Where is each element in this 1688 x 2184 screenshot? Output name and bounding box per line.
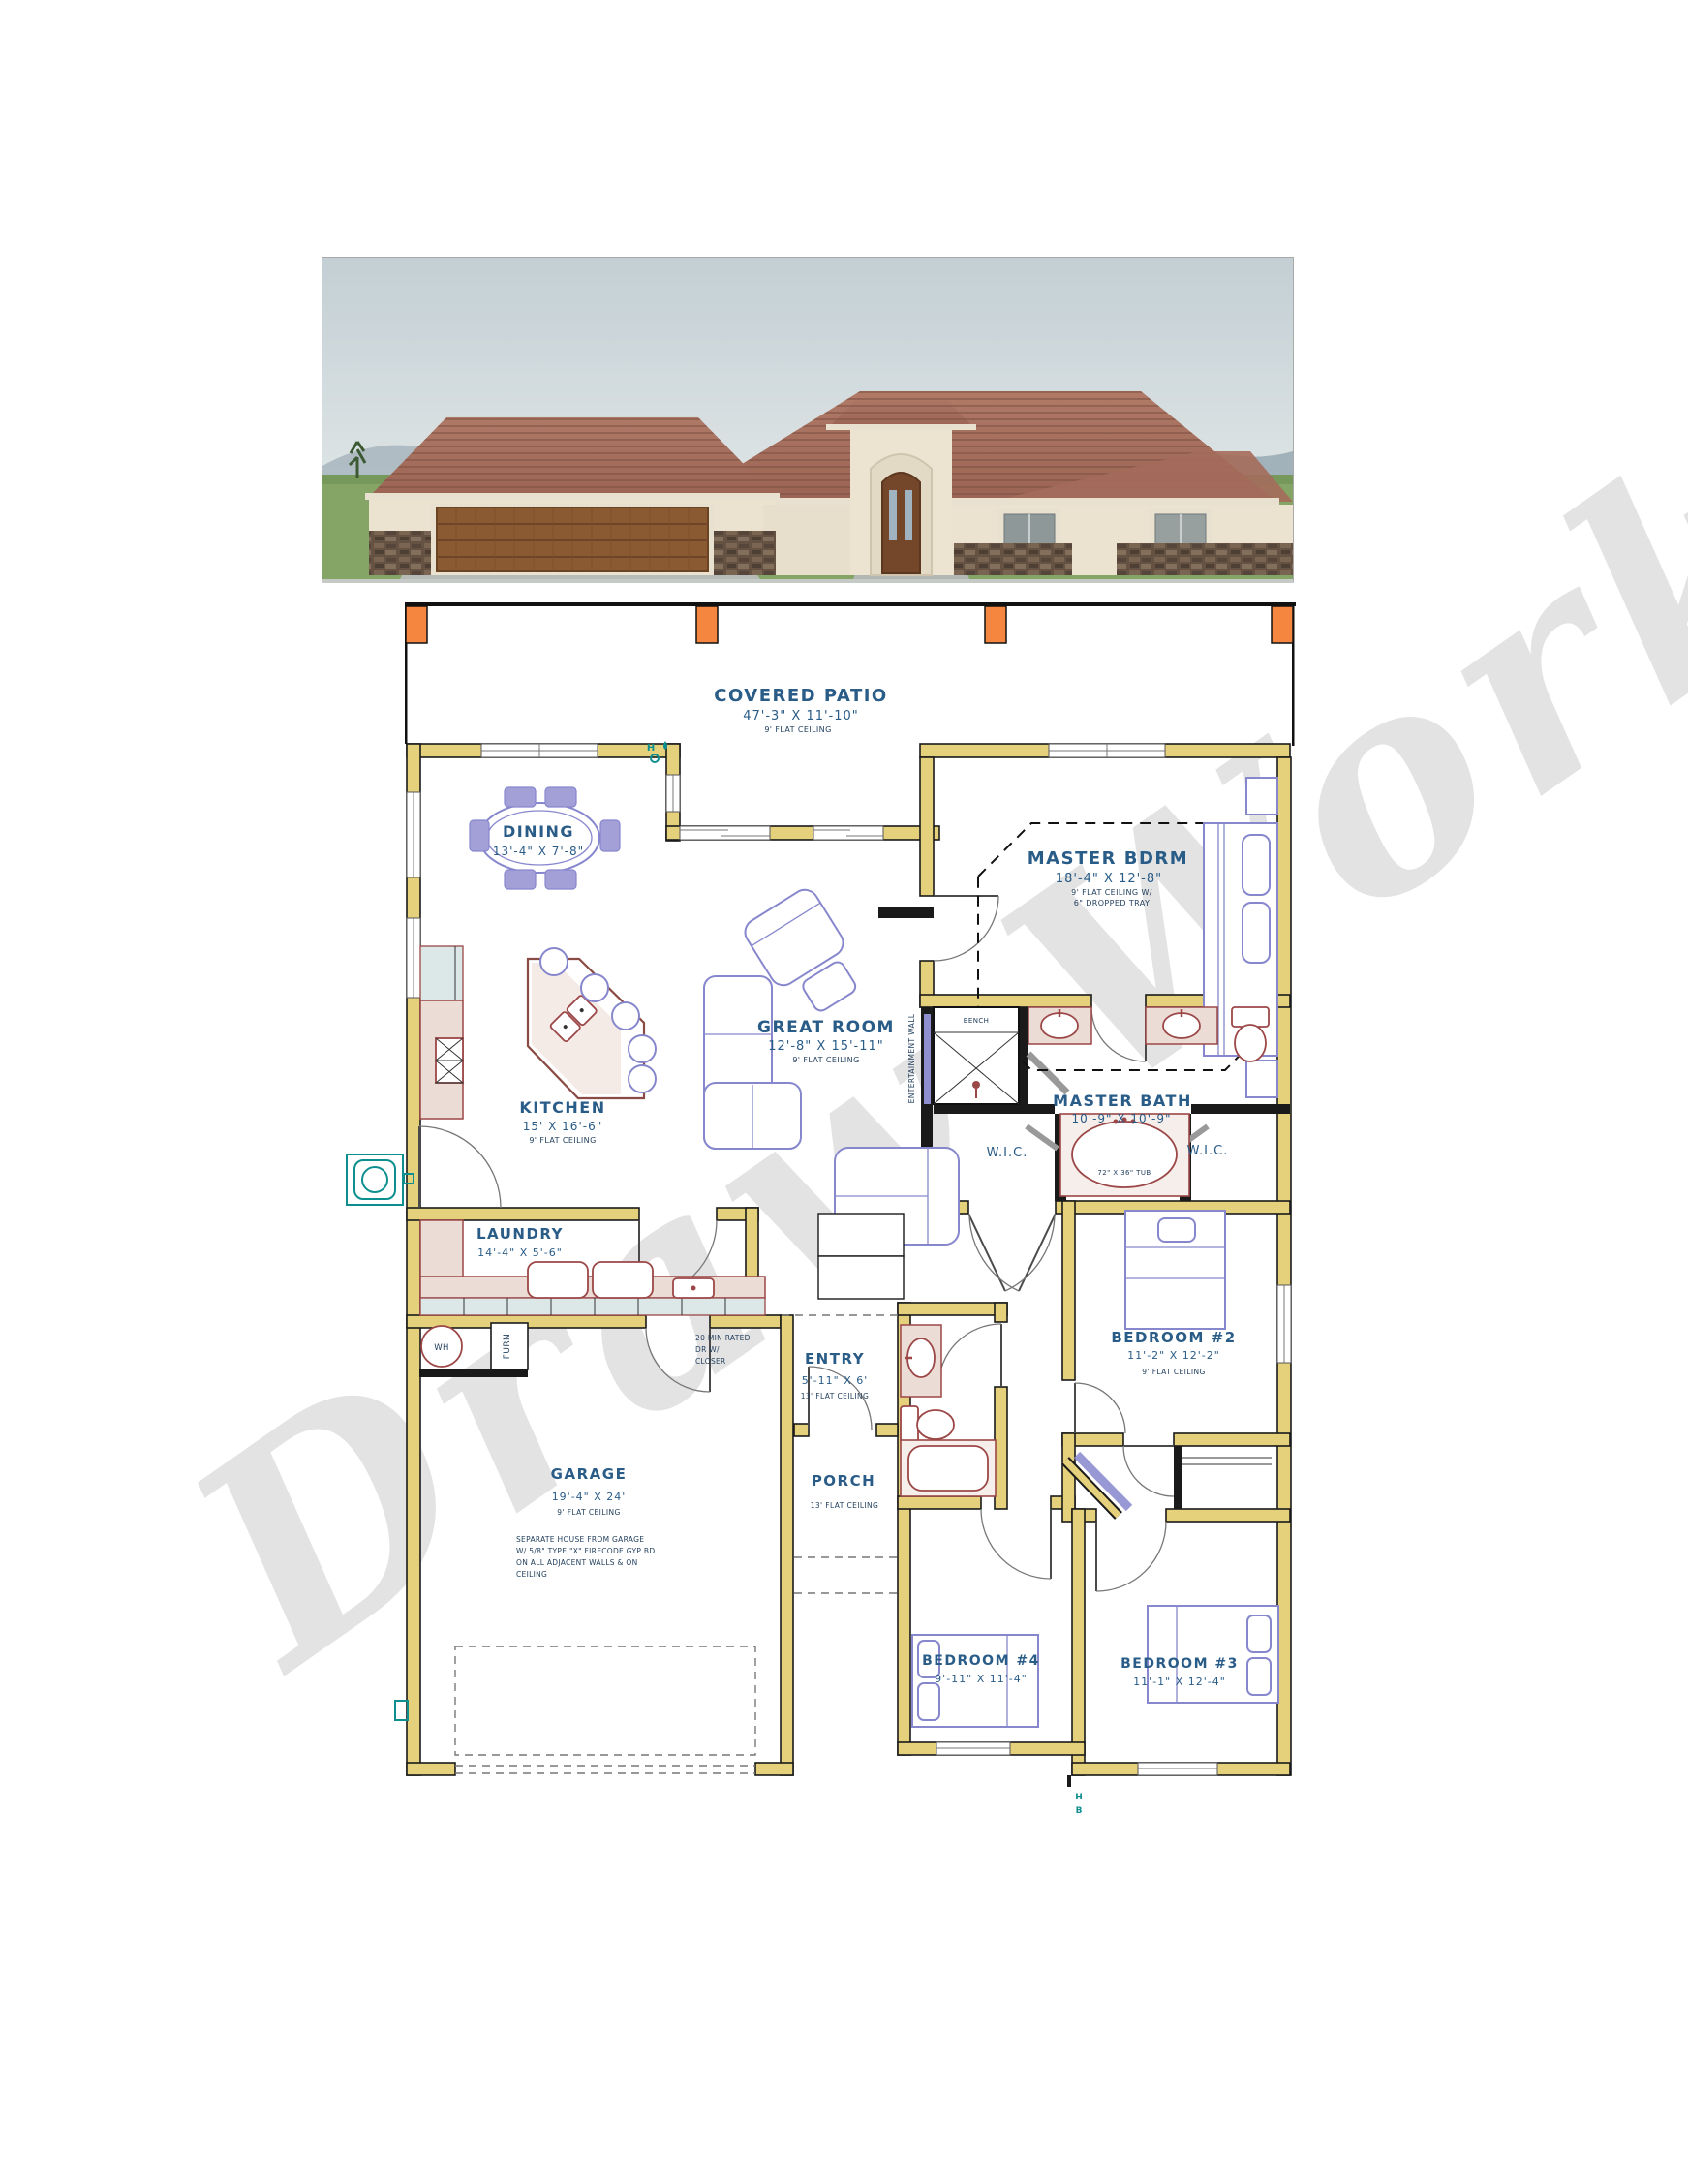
covered-patio-label: COVERED PATIO [714,686,887,706]
chair [545,787,576,807]
covered-patio-dims: 47'-3" X 11'-10" [743,709,859,723]
hose-bib-top-label: H [647,743,655,754]
bedroom2-dims: 11'-2" X 12'-2" [1127,1349,1220,1362]
bar-stool [581,974,608,1001]
entertainment-wall-label: ENTERTAINMENT WALL [907,1013,916,1103]
master-bdrm-dims: 18'-4" X 12'-8" [1056,872,1162,886]
bedroom4-dims: 9'-11" X 11'-4" [935,1673,1028,1685]
kitchen-dims: 15' X 16'-6" [523,1120,602,1133]
garage-faucet [395,1701,408,1720]
door-note-2: DR W/ [695,1345,720,1354]
laundry-label: LAUNDRY [476,1225,564,1243]
garage-ceil: 9' FLAT CEILING [557,1508,620,1517]
pillow [1158,1218,1195,1242]
dining-label: DINING [503,822,574,841]
bench-label: BENCH [964,1017,990,1025]
sliding-door [813,826,883,840]
kitchen-fixtures [420,946,656,1119]
bedroom3-dims: 11'-1" X 12'-4" [1133,1676,1226,1688]
tub [1072,1122,1177,1187]
nightstand [1246,1061,1277,1097]
floor-plan: COVERED PATIO 47'-3" X 11'-10" 9' FLAT C… [0,0,1688,2184]
entry-ceil: 13' FLAT CEILING [801,1392,870,1400]
window [1138,1763,1217,1775]
base-cabinets [420,1298,765,1315]
kitchen-ceil: 9' FLAT CEILING [529,1136,596,1145]
bedroom3-furniture [1148,1606,1278,1703]
chair [505,870,536,889]
hose-bib-bottom-h: H [1075,1793,1083,1802]
window [936,1742,1010,1755]
toilet [901,1406,954,1443]
toilet [1232,1007,1269,1061]
garage-dims: 19'-4" X 24' [552,1491,627,1503]
garage-label: GARAGE [551,1465,628,1483]
washer [528,1262,588,1298]
entertainment-wall-bar [924,1014,931,1104]
garage-note-4: CEILING [516,1570,547,1579]
window [481,744,598,757]
chair [505,787,536,807]
wic-right-label: W.I.C. [1187,1144,1229,1158]
bedroom4-label: BEDROOM #4 [922,1653,1040,1669]
dryer [593,1262,653,1298]
covered-patio-ceil: 9' FLAT CEILING [764,725,831,734]
plan-sheet-page: Draw Works [0,0,1688,2184]
window [1277,1285,1291,1363]
window [407,792,420,877]
master-bath-label: MASTER BATH [1053,1092,1192,1110]
window [1049,744,1165,757]
tub-label: 72" X 36" TUB [1097,1169,1151,1177]
chair [470,820,489,851]
garage-note-1: SEPARATE HOUSE FROM GARAGE [516,1535,644,1544]
entry-label: ENTRY [805,1350,865,1368]
great-room-label: GREAT ROOM [757,1018,895,1037]
nightstand [1246,778,1277,815]
patio-post [985,606,1006,643]
bedroom2-ceil: 9' FLAT CEILING [1142,1368,1205,1376]
garage-note-3: ON ALL ADJACENT WALLS & ON [516,1558,638,1567]
pillow [1243,835,1270,895]
pillow [1247,1615,1271,1652]
master-bdrm-ceil2: 6" DROPPED TRAY [1074,899,1151,907]
laundry-dims: 14'-4" X 5'-6" [477,1246,563,1259]
window [666,775,680,812]
garage-door-outline [455,1646,755,1755]
chair [545,870,576,889]
wic-left-label: W.I.C. [987,1146,1028,1160]
pillow [918,1683,939,1720]
hose-bib-bottom-b: B [1076,1806,1083,1816]
great-room-dims: 12'-8" X 15'-11" [768,1039,884,1054]
dining-dims: 13'-4" X 7'-8" [493,845,584,858]
kitchen-label: KITCHEN [519,1098,605,1117]
great-room-furniture [704,885,959,1245]
great-room-ceil: 9' FLAT CEILING [792,1056,859,1064]
master-bdrm-label: MASTER BDRM [1028,848,1188,869]
bedroom3-label: BEDROOM #3 [1120,1656,1239,1672]
bar-stool [612,1002,639,1030]
master-bdrm-ceil: 9' FLAT CEILING W/ [1071,888,1152,897]
bar-stool [540,948,568,975]
patio-post [1272,606,1293,643]
bar-stool [629,1035,656,1062]
bedroom2-label: BEDROOM #2 [1111,1329,1236,1346]
window [407,918,420,998]
water-heater-label: WH [434,1343,449,1353]
porch-ceil: 13' FLAT CEILING [811,1501,879,1510]
pillow [1247,1658,1271,1695]
porch-label: PORCH [812,1472,875,1490]
entry-bath-fixtures [901,1325,996,1496]
door-note-3: CLOSER [695,1357,726,1366]
bedroom2-furniture [1125,1211,1225,1329]
door-note-1: 20 MIN RATED [695,1334,751,1342]
patio-post [696,606,718,643]
chair [600,820,620,851]
sliding-door [680,826,770,840]
refrigerator [420,946,463,1000]
pillow [1243,903,1270,963]
garage-note-2: W/ 5/8" TYPE "X" FIRECODE GYP BD [516,1547,655,1555]
garage-markers [455,1646,755,1755]
furnace-label: FURN [503,1334,512,1359]
patio-post [406,606,427,643]
bar-stool [629,1065,656,1092]
entry-dims: 5'-11" X 6' [802,1374,869,1387]
laundry-fixtures [420,1220,765,1315]
master-bath-dims: 10'-9" X 10'-9" [1072,1112,1172,1125]
patio-beam [405,602,1296,746]
